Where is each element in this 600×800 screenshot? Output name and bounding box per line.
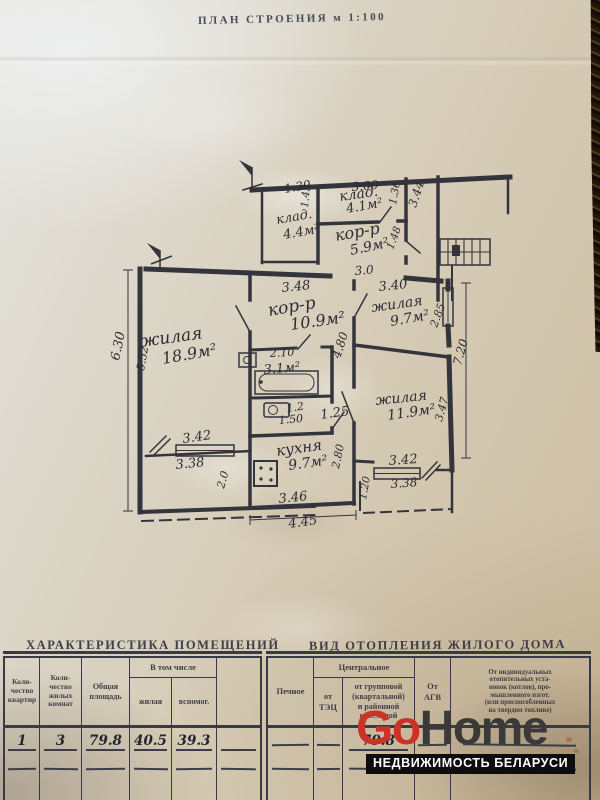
empty-cell [268,754,314,778]
plan-label-dim-6-30: 6.30 [108,330,129,361]
col-header-including: В том числе [130,658,217,678]
plan-label-dim-3-38-right: 3.38 [390,475,418,491]
col-header-total-area: Общая площадь [82,658,130,728]
empty-cell [415,778,451,800]
plan-label-dim-1-48: 1.48 [385,225,404,251]
stove-icon [254,461,277,486]
value-living-area: 40.5 [130,728,172,754]
empty-cell [172,778,217,800]
col-header-living: жилая [130,678,172,728]
empty-cell [217,778,260,800]
plan-label-dim-3-42-right: 3.42 [388,452,418,469]
plan-label-dim-5-52: 5.52 [134,345,151,371]
gohome-logo-tagline: НЕДВИЖИМОСТЬ БЕЛАРУСИ [366,754,575,774]
scanned-floor-plan-page: ПЛАН СТРОЕНИЯ м 1:100 [0,0,600,800]
plan-label-dim-4-45: 4.45 [286,513,318,532]
empty-cell [130,754,172,778]
col-header-from-tec: от ТЭЦ [314,678,343,728]
vent-flag-icon [147,160,252,268]
plan-label-room-bath-area: 3.1м² [263,360,301,378]
plan-labels: 1.303.00клад.4.1м²1.431.363.44клад.4.4м²… [108,177,471,532]
gohome-logo-go: Go [356,702,420,755]
col-header-auxiliary: вспомог. [172,678,217,728]
col-header-rooms: Коли- чество жилых комнат [40,658,82,728]
plan-label-dim-1-50: 1.50 [278,412,304,427]
empty-cell [5,778,40,800]
empty-cell [268,728,314,754]
gohome-logo-home: Home [420,702,547,755]
plan-label-dim-3-0: 3.0 [354,262,375,278]
empty-cell [82,778,130,800]
plan-label-dim-1-43: 1.43 [299,184,313,209]
empty-cell [343,778,415,800]
col-header-stove: Печное [268,658,314,728]
plan-label-dim-1-25: 1.25 [319,404,350,423]
col-header-empty [217,658,260,728]
plan-label-dim-3-38-left: 3.38 [175,455,205,473]
empty-cell [451,778,589,800]
empty-cell [172,754,217,778]
value-rooms: 3 [40,728,82,754]
sink-icon [239,353,256,367]
empty-cell [82,754,130,778]
plan-label-dim-4-80: 4.80 [329,330,351,361]
empty-cell [130,778,172,800]
plan-label-dim-2-80: 2.80 [329,443,347,471]
empty-cell [40,754,82,778]
value-empty [217,728,260,754]
empty-cell [40,778,82,800]
staircase-icon [440,239,490,265]
empty-cell [268,778,314,800]
empty-cell [314,728,343,754]
plan-label-dim-1-20: 1.20 [357,475,373,500]
empty-cell [314,754,343,778]
value-auxiliary-area: 39.3 [172,728,217,754]
rooms-table: Коли- чество квартир Коли- чество жилых … [3,656,262,800]
plan-label-dim-3-46: 3.46 [278,489,308,507]
plan-label-dim-3-40: 3.40 [378,277,408,295]
plan-label-dim-2-0: 2.0 [214,470,231,491]
col-header-central: Центральное [314,658,415,678]
empty-cell [217,754,260,778]
col-header-apartments: Коли- чество квартир [5,658,40,728]
empty-cell [5,754,40,778]
plan-label-dim-3-42-left: 3.42 [181,428,212,447]
empty-cell [314,778,343,800]
value-total-area: 79.8 [82,728,130,754]
plan-label-dim-7-20: 7.20 [450,337,471,367]
gohome-logo: GoHome [356,705,547,753]
plan-label-dim-2-10: 2.10 [268,346,294,360]
value-apartments: 1 [5,728,40,754]
